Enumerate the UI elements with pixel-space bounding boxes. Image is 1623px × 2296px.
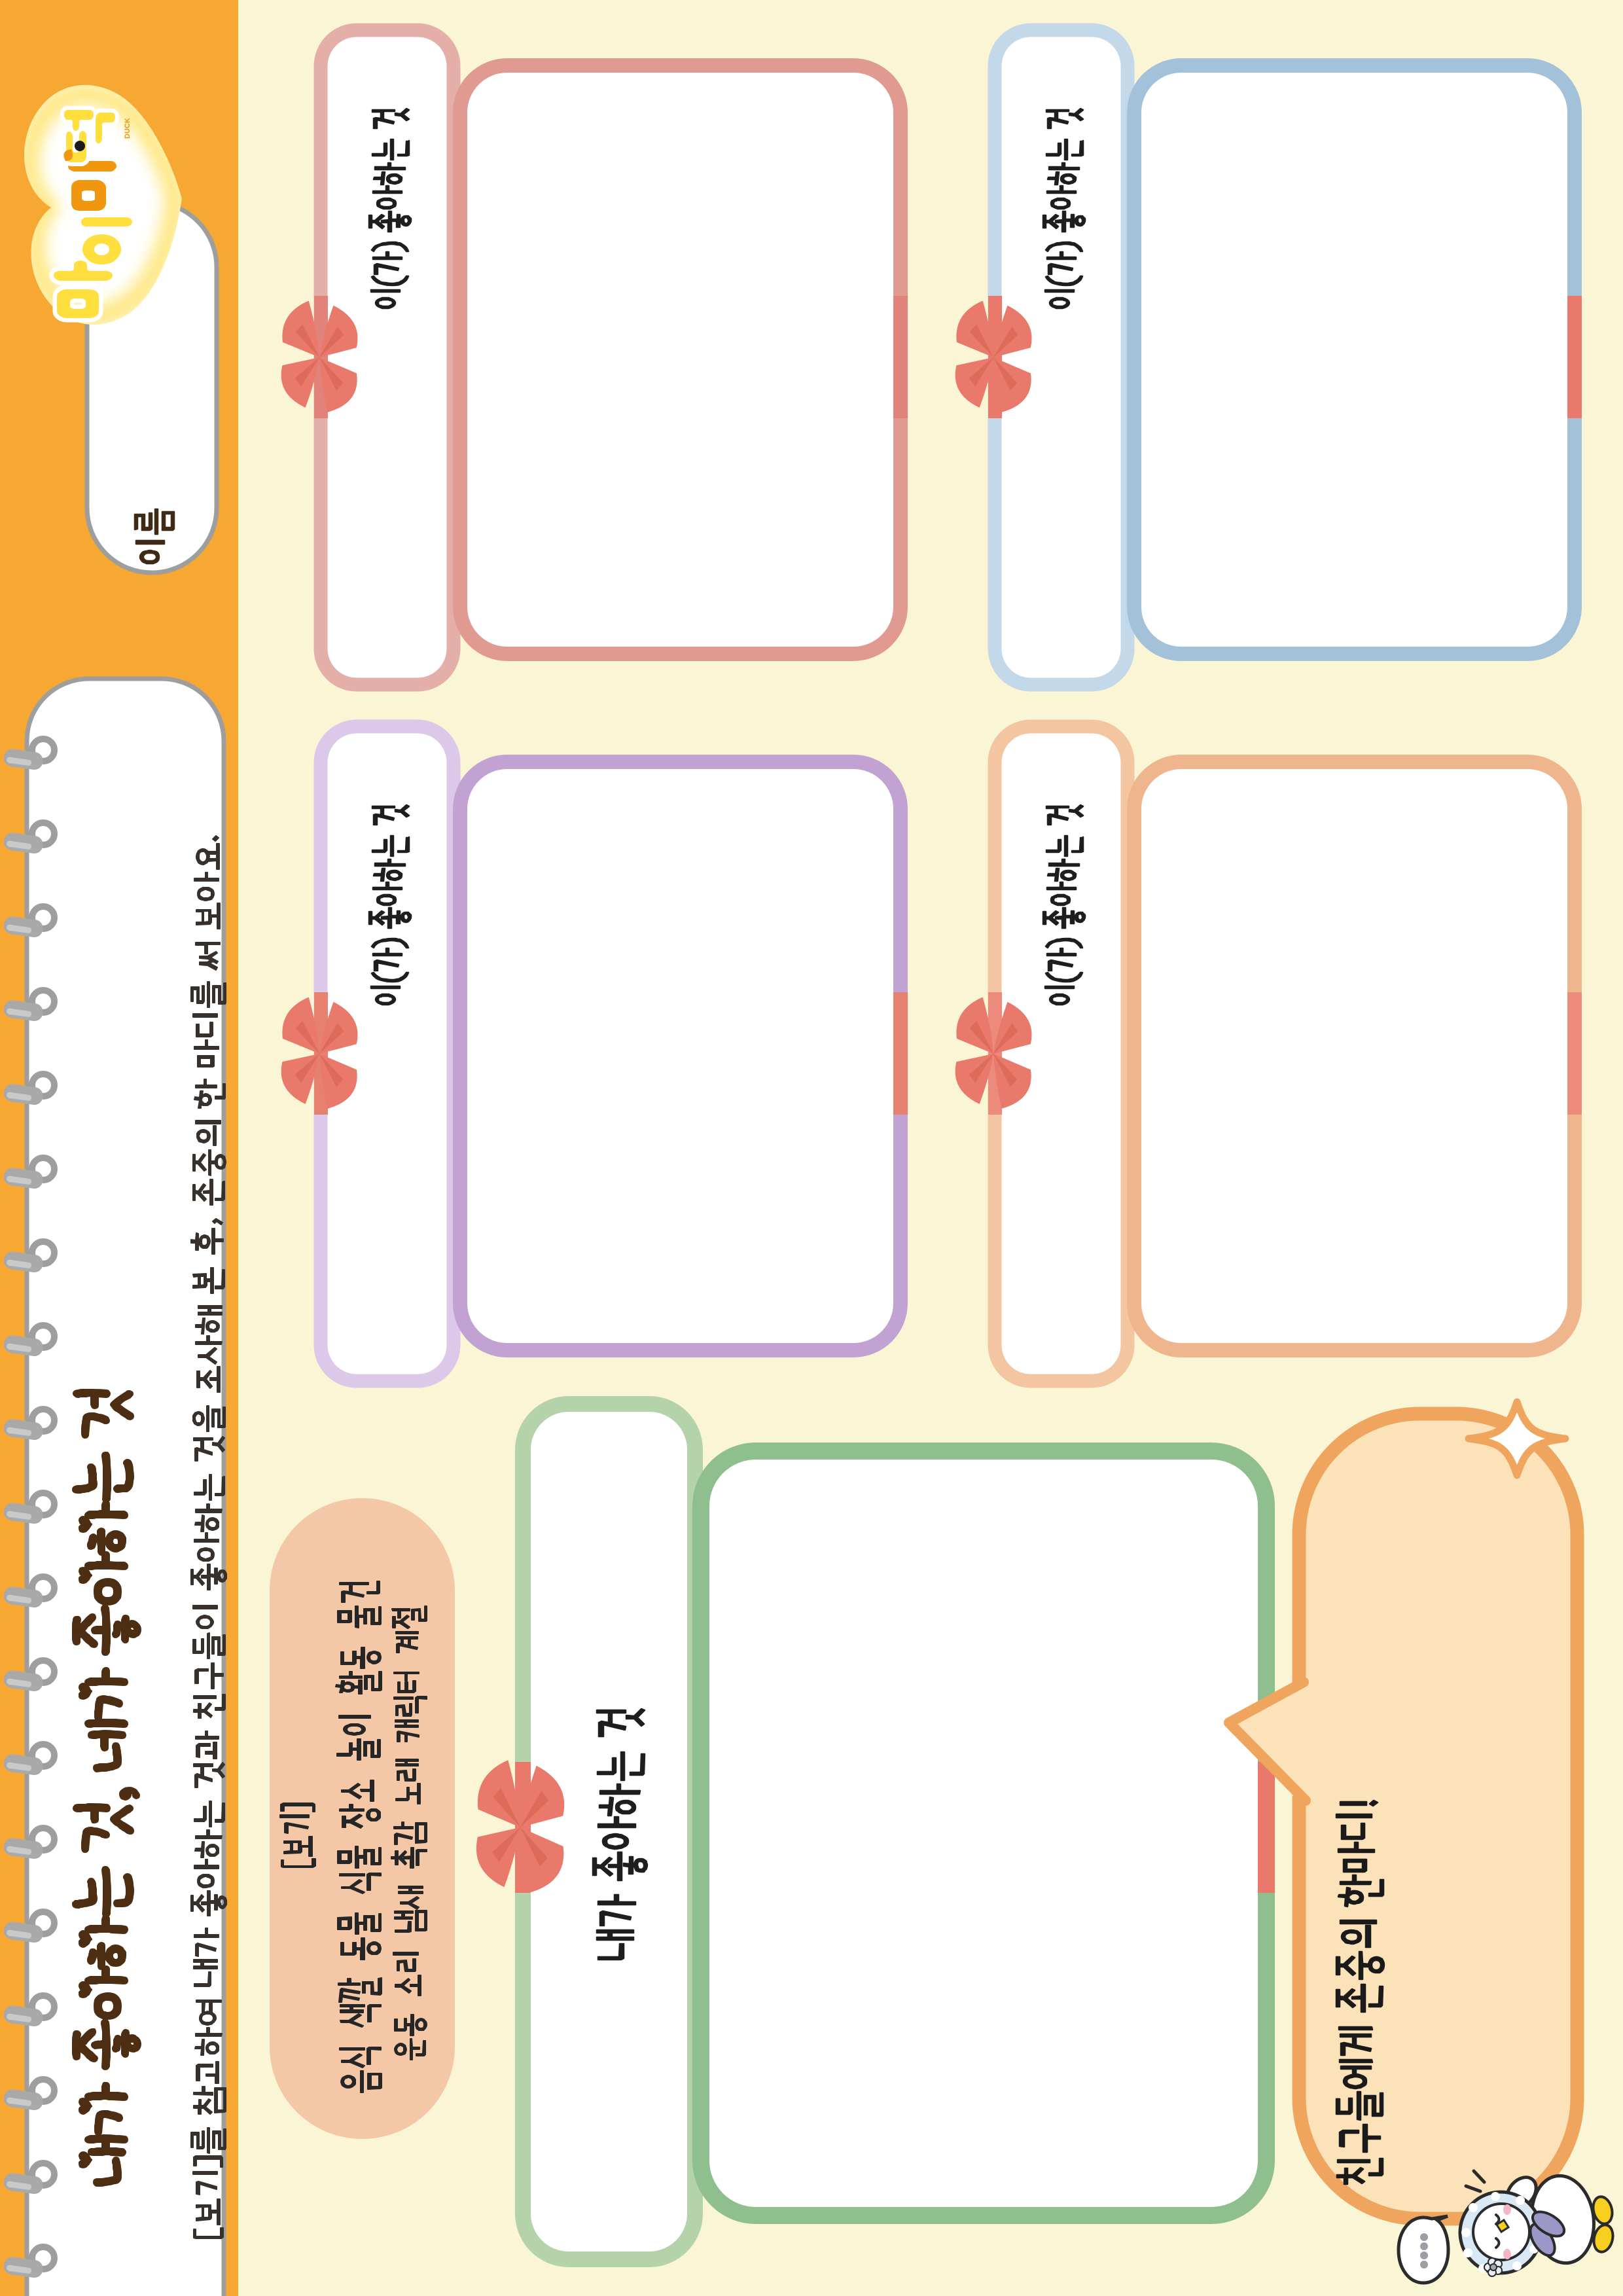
svg-text:DUCK: DUCK [124,118,132,139]
